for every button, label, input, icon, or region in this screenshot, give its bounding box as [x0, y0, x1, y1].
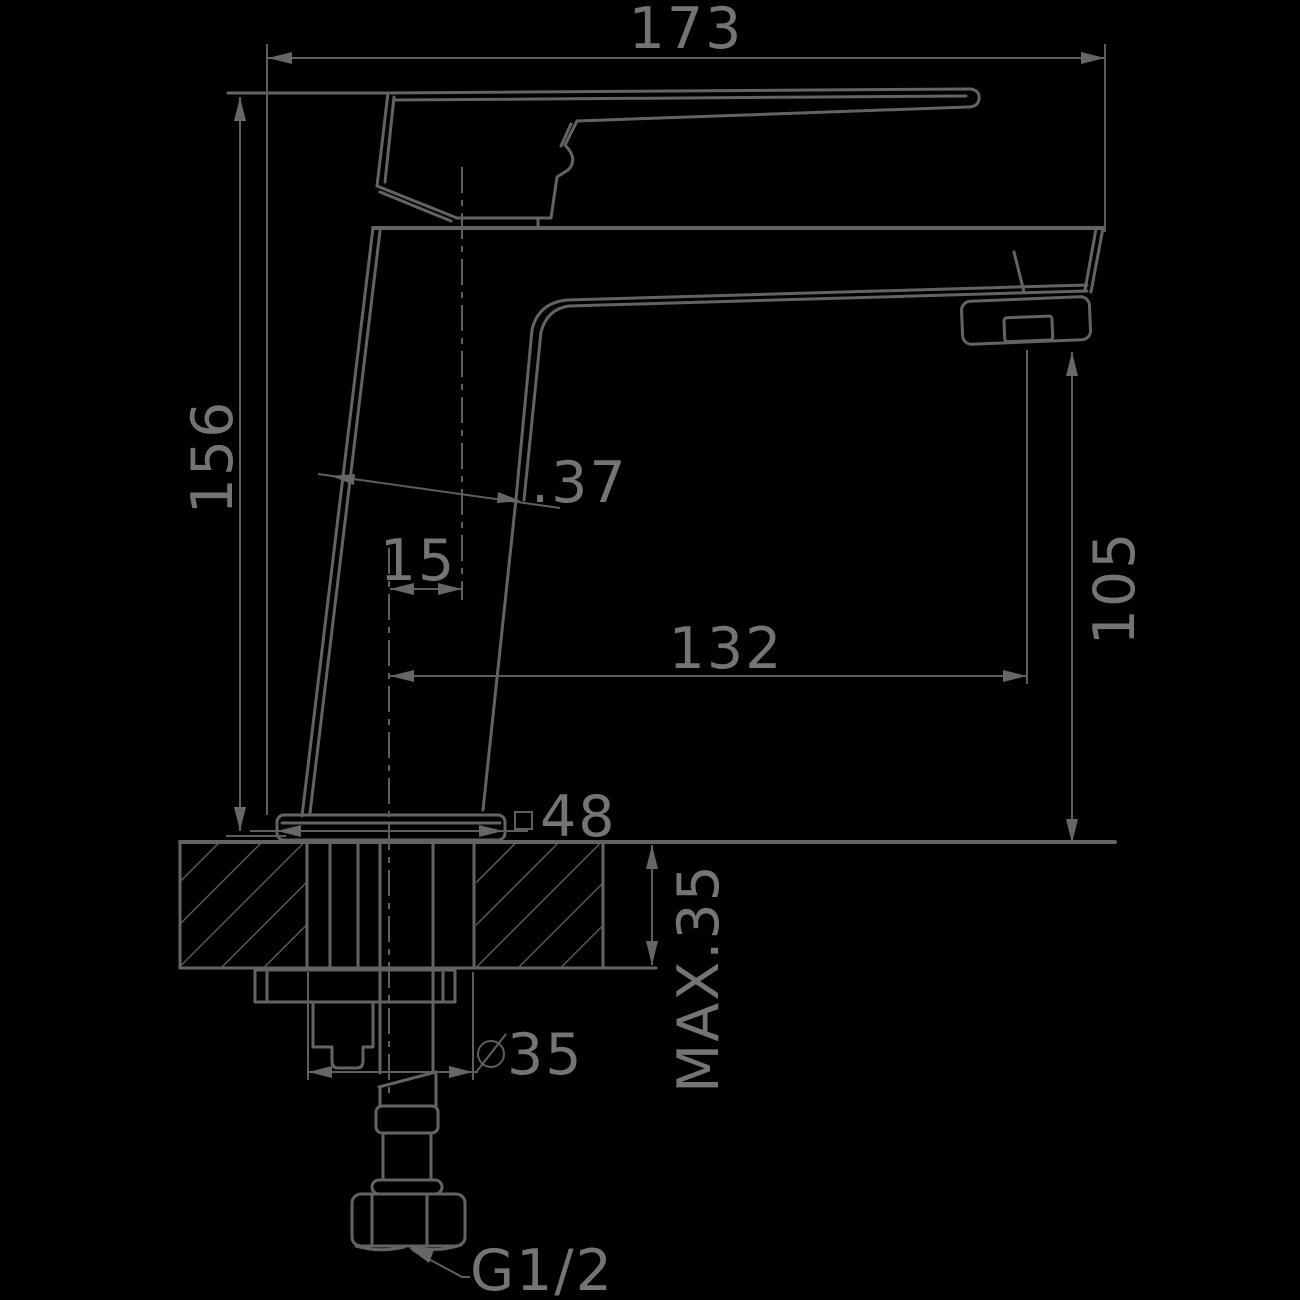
dimension-hole-diameter: 35: [308, 1022, 584, 1088]
base-plate: [277, 815, 505, 840]
hatch-right: [476, 842, 603, 968]
dimension-overall-height: 156: [180, 97, 246, 831]
faucet-body: [302, 228, 1103, 816]
horseshoe-washer: [255, 970, 455, 1002]
connection-nut: [352, 1194, 465, 1250]
counter-section: [180, 842, 1115, 968]
thread-label: G1/2: [470, 1238, 614, 1300]
technical-drawing-page: 173 156 .37 15 132 105: [0, 0, 1300, 1300]
handle-lever: [228, 89, 979, 228]
hose-break-line: [379, 1072, 436, 1087]
center-lines: [389, 167, 462, 1093]
dim-outlet-height-label: 105: [1082, 531, 1148, 646]
hatch-left: [180, 842, 307, 968]
square-symbol: [515, 812, 532, 829]
dimension-counter-thickness: MAX.35: [646, 845, 732, 1093]
dimension-handle-offset: 15: [380, 528, 462, 595]
dimension-body-depth: .37: [318, 450, 628, 516]
mounting-stud: [313, 1002, 373, 1068]
dimension-overall-length: 173: [268, 0, 1105, 64]
mounting-hardware: [255, 968, 465, 1250]
dim-overall-length-label: 173: [629, 0, 744, 62]
dimension-outlet-height: 105: [1066, 352, 1148, 843]
dim-body-depth-label: .37: [531, 450, 628, 516]
dim-hole-diameter-label: 35: [507, 1022, 584, 1088]
hose-collar: [376, 1106, 438, 1133]
dimension-spout-reach: 132: [390, 616, 1027, 682]
diameter-symbol: [477, 1034, 506, 1071]
dim-overall-height-label: 156: [180, 400, 246, 515]
aerator: [961, 296, 1091, 344]
faucet-outline: [228, 89, 1103, 840]
hose-ring: [372, 1180, 442, 1194]
dim-spout-reach-label: 132: [669, 616, 784, 682]
dim-handle-offset-label: 15: [380, 528, 457, 594]
dim-counter-thickness-label: MAX.35: [666, 863, 732, 1093]
faucet-technical-drawing: 173 156 .37 15 132 105: [0, 0, 1300, 1300]
dim-base-square-label: 48: [540, 784, 617, 850]
